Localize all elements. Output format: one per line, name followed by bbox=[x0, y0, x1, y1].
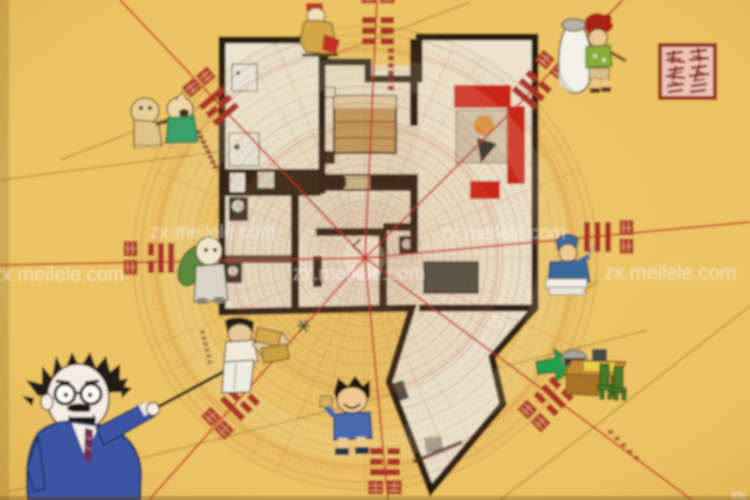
svg-text:zx.meilele.com: zx.meilele.com bbox=[150, 222, 276, 243]
svg-text:zx.meilele.com: zx.meilele.com bbox=[440, 223, 566, 244]
svg-text:zx.meilele.com: zx.meilele.com bbox=[0, 264, 124, 286]
svg-text:zx.meilele.com: zx.meilele.com bbox=[293, 263, 425, 285]
svg-text:zx.meilele.com: zx.meilele.com bbox=[604, 262, 736, 284]
